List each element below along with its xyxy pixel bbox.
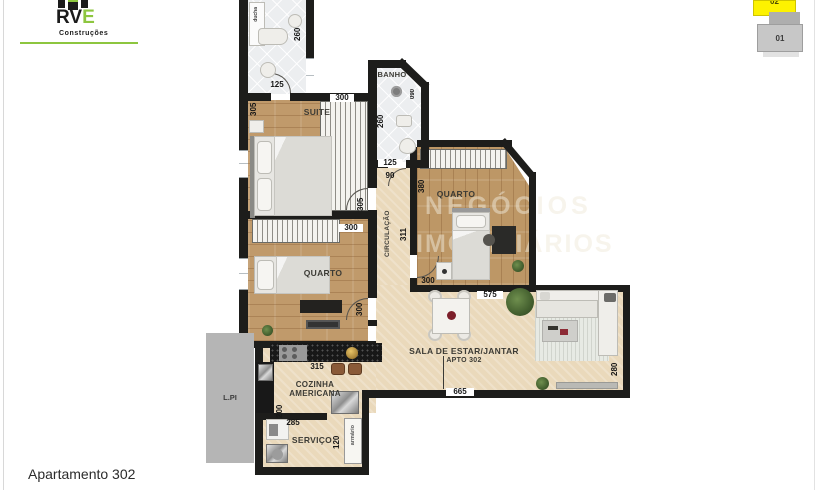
circulacao-label: CIRCULAÇÃO — [385, 204, 392, 264]
quarto-right-label: QUARTO — [432, 190, 480, 199]
wall-mid-c — [368, 320, 377, 326]
kitchen-bowl — [346, 347, 358, 359]
wall-bath-top-right — [306, 0, 314, 58]
bar-stool-1 — [331, 363, 345, 375]
armario-label: armário — [350, 425, 356, 445]
plan-caption: Apartamento 302 — [28, 466, 135, 482]
suite-pillow-1 — [257, 141, 272, 174]
sofa-cushion-light — [540, 292, 550, 300]
wall-sala-right — [623, 285, 630, 398]
coffee-table-decor — [560, 329, 568, 335]
quarto-left-pillow — [257, 260, 274, 290]
dim-banho-width: 125 — [378, 159, 402, 167]
quarto-right-chair — [483, 234, 495, 246]
quarto-left-desk — [300, 300, 342, 313]
floor-key: 02 01 — [745, 0, 815, 62]
floor-key-shadow — [763, 52, 799, 57]
wall-sala-bottom — [362, 390, 630, 398]
laundry-tank — [266, 444, 288, 463]
floorplan-page: RVE Construções 02 01 GX NEGÓCIOS IMOBIL… — [0, 0, 819, 490]
dim-banho-shower: 090 — [410, 86, 416, 102]
sala-label: SALA DE ESTAR/JANTAR — [408, 347, 520, 356]
logo-underline — [20, 42, 138, 44]
shower-label: ducha — [253, 7, 259, 22]
washer-door — [269, 424, 278, 436]
lpi-box: L.PI — [206, 333, 254, 463]
tank-basin — [272, 449, 283, 460]
dim-sala-bottom-width: 665 — [446, 388, 474, 396]
dim-quarto-left-depth: 300 — [356, 296, 364, 322]
dim-quarto-right-depth: 380 — [418, 172, 426, 200]
dim-suite-width: 300 — [330, 94, 354, 102]
burner — [292, 354, 297, 359]
nightstand-knob — [442, 269, 447, 274]
dim-circ-length: 311 — [400, 222, 408, 248]
sofa-cushion-dark — [604, 293, 616, 302]
right-edge-line — [814, 0, 815, 490]
wall-quarto-right-left-b — [410, 278, 417, 285]
tv-console — [556, 382, 618, 389]
logo-brand: RVE — [56, 8, 95, 27]
dim-servico-depth: 120 — [333, 430, 341, 454]
living-plant-small — [536, 377, 549, 390]
sala-sublabel: APTO 302 — [408, 357, 520, 364]
suite-window — [239, 150, 248, 178]
quarto-right-closet — [420, 149, 507, 169]
sala-plant-big — [506, 288, 534, 316]
logo-subtitle: Construções — [59, 30, 108, 37]
burner — [292, 347, 297, 352]
left-edge-line — [3, 0, 4, 490]
banho-label: BANHO — [372, 71, 412, 79]
cozinha-label-line1: COZINHA — [290, 381, 340, 389]
fridge — [258, 364, 273, 381]
suite-label: SUITE — [292, 108, 342, 117]
logo: RVE Construções — [0, 0, 160, 50]
wall-quarto-right-left-a — [410, 147, 417, 255]
dim-hall-width: 90 — [382, 172, 398, 180]
quarto-right-desk — [492, 226, 516, 254]
dim-circ-top: 305 — [357, 192, 365, 216]
servico-label: SERVIÇO — [288, 436, 336, 445]
logo-brand-green: E — [82, 7, 95, 28]
dim-quarto-right-width: 300 — [417, 277, 439, 285]
dim-sala-top-width: 575 — [477, 291, 503, 299]
wall-banho-right — [421, 82, 429, 162]
dim-banho-depth: 260 — [377, 108, 385, 134]
burner — [282, 354, 287, 359]
dim-bath-top-depth: 260 — [294, 20, 302, 48]
wall-quarto-right-right — [529, 172, 536, 292]
cozinha-label-line2: AMERICANA — [288, 390, 342, 398]
quarto-left-tv — [306, 320, 340, 329]
burner — [282, 347, 287, 352]
lpi-label: L.PI — [206, 393, 254, 402]
dim-extension-line — [443, 356, 444, 389]
bath-top-window — [306, 58, 314, 96]
dim-quarto-left-width: 300 — [339, 224, 363, 232]
shower-head-banho — [391, 86, 402, 97]
sink-banho — [396, 115, 412, 127]
quarto-left-closet — [252, 219, 340, 243]
dining-flowers — [447, 311, 456, 320]
coffee-table-book — [548, 326, 558, 330]
floor-key-unit-02-label: 02 — [754, 0, 795, 6]
cooktop — [279, 345, 307, 361]
wall-quarto-right-top — [417, 140, 512, 147]
bar-stool-2 — [348, 363, 362, 375]
toilet-top-bath — [258, 28, 288, 45]
toilet-banho — [399, 138, 416, 154]
quarto-right-plant — [512, 260, 524, 272]
sofa-seat — [536, 300, 598, 318]
armario-cabinet: armário — [344, 418, 362, 464]
wall-servico-bottom — [255, 467, 369, 475]
quarto-left-plant — [262, 325, 273, 336]
bidet-top-bath — [260, 62, 276, 78]
logo-brand-black: RV — [56, 7, 82, 28]
floor-key-unit-01-label: 01 — [758, 34, 802, 43]
dim-servico-width: 285 — [282, 419, 304, 427]
suite-bed-duvet — [274, 136, 332, 216]
suite-pillow-2 — [257, 178, 272, 211]
quarto-left-window — [239, 258, 248, 290]
floor-key-unit-01: 01 — [757, 24, 803, 52]
dim-suite-depth: 305 — [250, 96, 258, 122]
wall-servico-right — [362, 390, 369, 475]
quarto-left-label: QUARTO — [299, 269, 347, 278]
dim-cozinha-counter: 315 — [306, 363, 328, 371]
dim-bath-top-width: 125 — [266, 81, 288, 89]
wall-mid-b — [368, 210, 377, 298]
dim-sala-right-depth: 280 — [611, 356, 619, 382]
quarto-right-pillow — [456, 215, 486, 228]
